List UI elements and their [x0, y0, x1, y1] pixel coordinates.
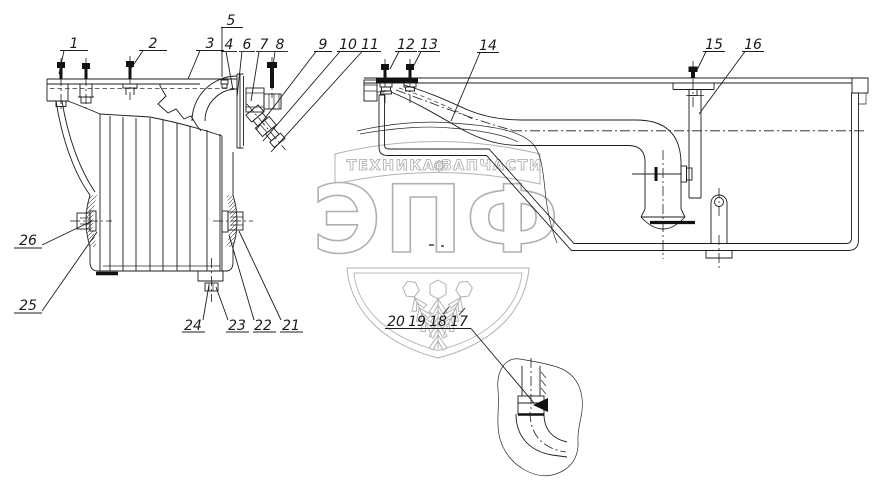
callout-3-label: 3 [206, 36, 215, 52]
mounting-flange [47, 79, 237, 101]
callout-5-label: 5 [227, 13, 236, 29]
callout-7-label: 7 [260, 37, 269, 53]
outlet-elbow [192, 74, 244, 148]
callout-14: 14 [451, 38, 499, 121]
callout-4: 4 [221, 37, 237, 90]
callout-26: 26 [14, 221, 92, 249]
parts-diagram-page: ТЕХНИКА ⚙ ЗАПЧАСТИ ЭПФ [0, 0, 879, 485]
callout-2-label: 2 [149, 36, 158, 52]
callout-3: 3 [188, 36, 224, 79]
parts-diagram-canvas: ТЕХНИКА ⚙ ЗАПЧАСТИ ЭПФ [0, 0, 879, 485]
callout-17-label: 17 [450, 314, 468, 330]
callout-24-label: 24 [184, 318, 202, 334]
pipe-bracket [632, 61, 714, 198]
right-flange [852, 78, 868, 104]
callout-23: 23 [216, 287, 249, 334]
callout-20: 20 [385, 314, 407, 330]
watermark-logo: ЭПФ [312, 166, 562, 275]
callout-23-label: 23 [228, 318, 246, 334]
callout-25-label: 25 [19, 298, 37, 314]
callout-18-label: 18 [429, 314, 447, 330]
callout-7: 7 [251, 37, 272, 101]
callout-15: 15 [697, 37, 725, 70]
mounting-rail [364, 78, 868, 83]
flange-bolt [78, 58, 94, 108]
callout-26-label: 26 [19, 233, 37, 249]
callout-22-label: 22 [254, 318, 272, 334]
oil-pan-body [56, 84, 237, 274]
flow-arrow [533, 398, 548, 412]
callout-15-label: 15 [705, 37, 723, 53]
callout-14-label: 14 [479, 38, 497, 54]
callout-24: 24 [182, 285, 209, 334]
callout-2: 2 [130, 36, 167, 70]
callout-16-label: 16 [744, 37, 762, 53]
callout-11: 11 [271, 37, 381, 152]
callout-9-label: 9 [319, 37, 328, 53]
callout-1-label: 1 [70, 36, 79, 52]
callout-19-label: 19 [408, 314, 426, 330]
callout-11-label: 11 [361, 37, 379, 53]
support-bracket [706, 188, 732, 268]
callout-10-label: 10 [339, 37, 357, 53]
callout-21-label: 21 [282, 318, 300, 334]
callout-13: 13 [412, 37, 440, 69]
callout-6-label: 6 [243, 37, 252, 53]
callout-13-label: 13 [420, 37, 438, 53]
callout-8-label: 8 [276, 37, 285, 53]
callout-20-label: 20 [387, 314, 405, 330]
callout-12-label: 12 [397, 37, 415, 53]
top-bolt [267, 57, 277, 98]
callout-4-label: 4 [225, 37, 234, 53]
callout-19: 19 [406, 314, 428, 330]
